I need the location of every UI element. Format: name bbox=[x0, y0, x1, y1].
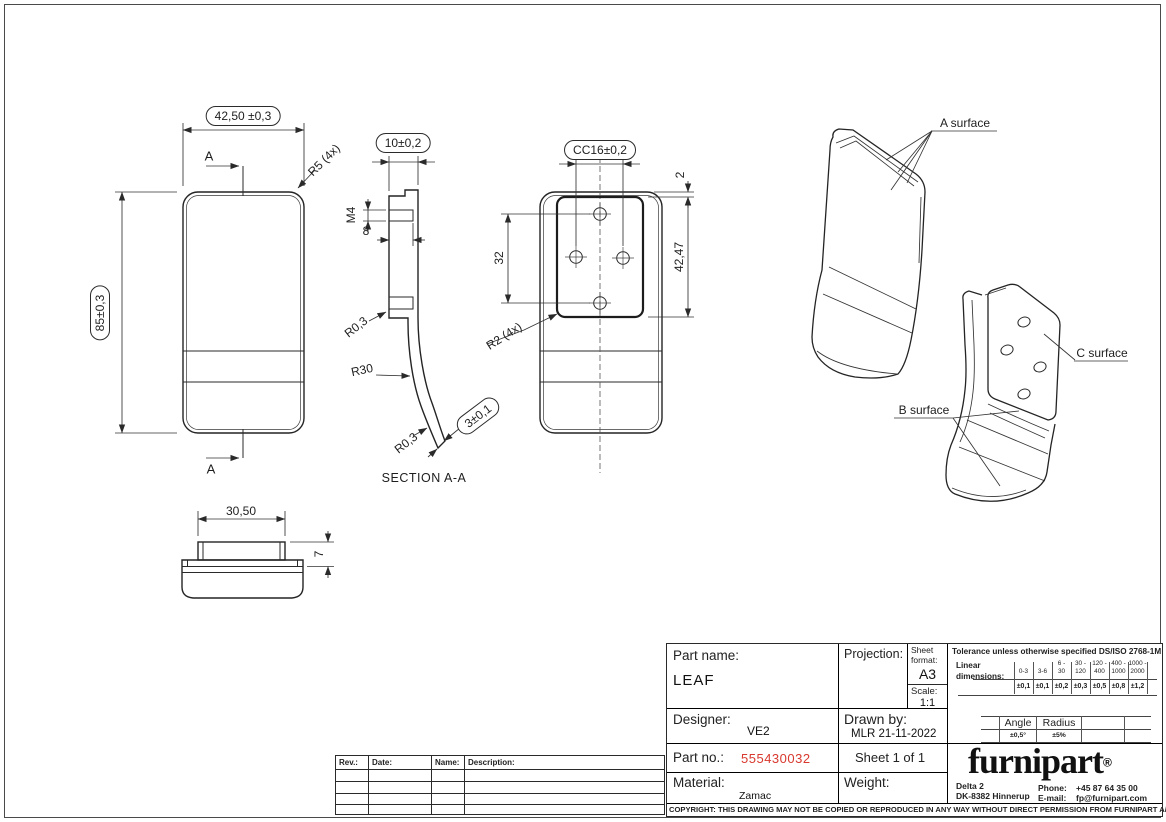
sheet-info-value: Sheet 1 of 1 bbox=[855, 750, 925, 765]
iso-view-front bbox=[812, 129, 997, 378]
description-column-header: Description: bbox=[468, 758, 515, 767]
address-line1: Delta 2 bbox=[956, 781, 984, 791]
designer-cell: Designer: VE2 bbox=[667, 709, 839, 744]
revision-table: Rev.: Date: Name: Description: bbox=[335, 755, 665, 815]
range-line1: 120 - bbox=[1092, 660, 1107, 667]
part-name-label: Part name: bbox=[667, 644, 838, 663]
sheet-format-value: A3 bbox=[908, 666, 947, 682]
section-view bbox=[363, 156, 460, 457]
sheet-info-cell: Sheet 1 of 1 bbox=[839, 744, 948, 773]
projection-label: Projection: bbox=[839, 644, 907, 661]
range-line2: 400 bbox=[1094, 668, 1105, 675]
range-line1: 6 - bbox=[1058, 660, 1065, 667]
section-arrow-label-bottom: A bbox=[207, 463, 216, 476]
sheet-format-scale-cell: Sheet format: A3 Scale: 1:1 bbox=[908, 644, 948, 709]
scale-value: 1:1 bbox=[908, 697, 947, 709]
angle-header: Angle bbox=[1000, 717, 1036, 729]
material-cell: Material: Zamac bbox=[667, 773, 839, 804]
range-line1: 400 - bbox=[1111, 660, 1126, 667]
drawn-by-value: MLR 21-11-2022 bbox=[851, 728, 936, 740]
sheet-format-label: Sheet format: bbox=[908, 644, 947, 666]
scale-label: Scale: bbox=[908, 684, 947, 697]
part-name-cell: Part name: LEAF bbox=[667, 644, 839, 709]
designer-value: VE2 bbox=[747, 724, 770, 738]
front-height-dimension: 85±0,3 bbox=[90, 286, 110, 341]
part-no-label: Part no.: bbox=[673, 750, 724, 765]
brand-cell: furnipart® Delta 2 DK-8382 Hinnerup Phon… bbox=[948, 744, 1162, 804]
furnipart-logo: furnipart® bbox=[968, 740, 1112, 782]
front-width-dimension: 42,50 ±0,3 bbox=[206, 106, 281, 126]
designer-label: Designer: bbox=[673, 712, 731, 727]
plate-height-dimension: 42,47 bbox=[673, 242, 685, 272]
title-block: Part name: LEAF Projection: Sheet format… bbox=[666, 643, 1163, 817]
range-line2: 120 bbox=[1075, 668, 1086, 675]
drawn-by-cell: Drawn by: MLR 21-11-2022 bbox=[839, 709, 948, 744]
radius-header: Radius bbox=[1037, 717, 1081, 729]
rev-column-header: Rev.: bbox=[339, 758, 358, 767]
name-column-header: Name: bbox=[435, 758, 459, 767]
copyright-text: COPYRIGHT: THIS DRAWING MAY NOT BE COPIE… bbox=[669, 805, 1166, 814]
copyright-strip: COPYRIGHT: THIS DRAWING MAY NOT BE COPIE… bbox=[667, 804, 1162, 816]
iso-view-back bbox=[894, 284, 1128, 501]
range-line2: 0-3 bbox=[1019, 668, 1028, 675]
range-line2: 3-6 bbox=[1038, 668, 1047, 675]
tolerance-linear-word: Linear bbox=[956, 661, 981, 670]
range-line2: 30 bbox=[1058, 668, 1065, 675]
back-view bbox=[487, 157, 694, 473]
registered-mark: ® bbox=[1103, 756, 1112, 770]
email-label: E-mail: bbox=[1038, 793, 1066, 803]
date-column-header: Date: bbox=[372, 758, 392, 767]
projection-cell: Projection: bbox=[839, 644, 908, 709]
tolerance-value: ±1,2 bbox=[1128, 683, 1147, 690]
b-surface-label: B surface bbox=[899, 404, 950, 416]
boss-width-dimension: 30,50 bbox=[226, 505, 256, 517]
material-label: Material: bbox=[673, 775, 725, 790]
weight-label: Weight: bbox=[844, 775, 890, 790]
hole-pitch-dimension: 32 bbox=[493, 251, 505, 264]
logo-text: furnipart bbox=[968, 741, 1103, 781]
thread-depth-dimension: 8 bbox=[363, 225, 370, 237]
boss-height-dimension: 7 bbox=[313, 551, 325, 558]
tolerance-value: ±0,1 bbox=[1033, 683, 1052, 690]
phone-label: Phone: bbox=[1038, 783, 1067, 793]
range-line1: 30 - bbox=[1075, 660, 1086, 667]
part-no-cell: Part no.: 555430032 bbox=[667, 744, 839, 773]
section-width-dimension: 10±0,2 bbox=[376, 133, 431, 153]
tolerance-value: ±0,8 bbox=[1109, 683, 1128, 690]
front-view bbox=[115, 123, 314, 458]
phone-number: +45 87 64 35 00 bbox=[1076, 783, 1138, 793]
weight-cell: Weight: bbox=[839, 773, 948, 804]
drawn-by-label: Drawn by: bbox=[844, 711, 907, 727]
c-surface-label: C surface bbox=[1076, 347, 1127, 359]
drawing-sheet: 42,50 ±0,3 85±0,3 A A R5 (4x) 10±0,2 M4 … bbox=[0, 0, 1166, 822]
part-name-value: LEAF bbox=[667, 663, 838, 689]
section-view-title: SECTION A-A bbox=[382, 472, 467, 485]
tolerance-value: ±0,5 bbox=[1090, 683, 1109, 690]
section-arrow-label-top: A bbox=[205, 150, 214, 163]
thread-size-label: M4 bbox=[345, 207, 357, 224]
tolerance-title: Tolerance unless otherwise specified DS/… bbox=[952, 647, 1161, 656]
range-line2: 2000 bbox=[1130, 668, 1144, 675]
range-line2: 1000 bbox=[1111, 668, 1125, 675]
part-no-value: 555430032 bbox=[741, 751, 811, 766]
range-line1: 1000 - bbox=[1128, 660, 1146, 667]
tolerance-value: ±0,3 bbox=[1071, 683, 1090, 690]
tolerance-cell: Tolerance unless otherwise specified DS/… bbox=[948, 644, 1162, 744]
material-value: Zamac bbox=[739, 790, 771, 802]
email-address: fp@furnipart.com bbox=[1076, 793, 1147, 803]
radius-tolerance-value: ±5% bbox=[1037, 732, 1081, 739]
tolerance-value: ±0,2 bbox=[1052, 683, 1071, 690]
angle-tolerance-value: ±0,5° bbox=[1000, 732, 1036, 739]
top-gap-dimension: 2 bbox=[674, 172, 686, 179]
hole-cc-dimension: CC16±0,2 bbox=[564, 140, 636, 160]
a-surface-label: A surface bbox=[940, 117, 990, 129]
tolerance-value: ±0,1 bbox=[1014, 683, 1033, 690]
address-line2: DK-8382 Hinnerup bbox=[956, 791, 1030, 801]
